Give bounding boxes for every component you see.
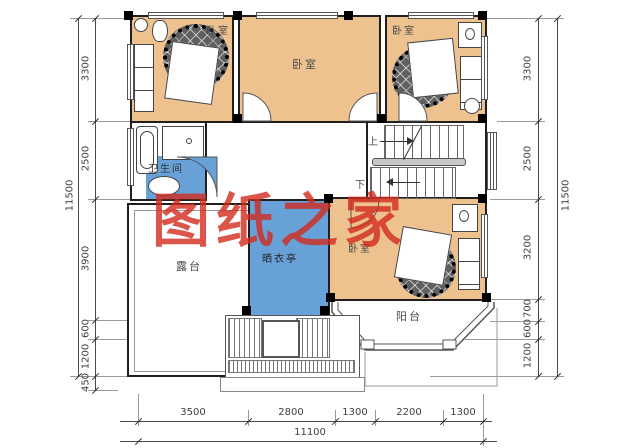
wardrobe-bottom-right — [458, 238, 480, 290]
bedroom-top-left-label: 卧室 — [206, 22, 230, 37]
steps-hatch-right — [296, 318, 330, 358]
dim-left-1: 2500 — [81, 139, 92, 179]
column — [377, 114, 386, 123]
vase-icon — [459, 210, 469, 222]
dim-ext — [248, 410, 249, 426]
vase-icon — [465, 28, 475, 40]
steps-bottom-strip — [228, 360, 355, 373]
dim-left-offset: 450 — [81, 363, 92, 403]
window — [481, 214, 488, 278]
bedroom-bottom-right-label: 卧室 — [348, 240, 372, 255]
dim-bottom-0: 3500 — [168, 407, 218, 418]
column — [478, 11, 487, 20]
dim-right-2: 3200 — [523, 228, 534, 268]
window — [127, 128, 134, 186]
column — [124, 11, 133, 20]
fan-icon — [134, 18, 148, 32]
dim-bottom-3: 2200 — [384, 407, 434, 418]
stair-up-label: 上 — [368, 133, 380, 148]
door-arc-bedroom — [350, 199, 380, 229]
stair-bay-window — [487, 132, 497, 190]
door-arc — [242, 92, 272, 122]
window — [127, 44, 134, 100]
dim-line-left-total — [78, 18, 79, 376]
dim-left-0: 3300 — [81, 49, 92, 89]
stair-arrow-up-line — [380, 141, 408, 142]
door-arc — [348, 92, 378, 122]
window — [256, 12, 338, 19]
balcony-label: 阳台 — [396, 308, 422, 324]
toilet-icon — [152, 20, 168, 42]
stair-arrow-down-line — [392, 182, 420, 183]
stair-flight-down — [370, 167, 456, 199]
stair-down-label: 下 — [355, 176, 367, 191]
bed-blanket — [394, 226, 452, 286]
window — [408, 12, 474, 19]
stair-arrow-down-head — [386, 178, 393, 186]
steps-landing — [262, 320, 300, 358]
steps-hatch-left — [228, 318, 262, 358]
dim-line-bottom-total — [120, 441, 497, 442]
column — [478, 194, 487, 203]
drying-pavilion-label: 晒衣亭 — [262, 250, 298, 265]
dim-ext — [487, 18, 564, 19]
window — [481, 36, 488, 100]
wardrobe-top-left — [134, 44, 154, 112]
bed-blanket — [407, 38, 459, 99]
dim-bottom-1: 2800 — [266, 407, 316, 418]
dim-right-5: 1200 — [523, 336, 534, 376]
column — [242, 306, 251, 315]
column — [344, 11, 353, 20]
dim-right-1: 2500 — [523, 139, 534, 179]
floor-plan: 3300 2500 3900 600 1200 450 11500 3300 2… — [0, 0, 640, 448]
column — [326, 293, 335, 302]
column — [478, 114, 487, 123]
bedroom-top-center-label: 卧室 — [292, 56, 318, 72]
stair-handrail — [372, 158, 466, 166]
stair-flight-up — [384, 125, 464, 159]
dim-line-bottom-chain — [120, 421, 492, 422]
column — [482, 293, 491, 302]
dim-bottom-total: 11100 — [285, 427, 335, 438]
column — [233, 11, 242, 20]
terrace-label: 露台 — [176, 258, 202, 274]
fan-icon — [464, 98, 480, 114]
column — [233, 114, 242, 123]
dim-left-total: 11500 — [65, 176, 76, 216]
shower — [162, 126, 204, 160]
dim-left-2: 3900 — [81, 239, 92, 279]
shower-drain-icon — [186, 138, 192, 144]
window — [148, 12, 224, 19]
dim-line-left-chain — [95, 18, 96, 390]
steps-apron — [220, 377, 365, 392]
column — [320, 306, 329, 315]
dim-right-total: 11500 — [561, 176, 572, 216]
door-arc — [398, 92, 428, 122]
dim-bottom-2: 1300 — [330, 407, 380, 418]
column — [324, 194, 333, 203]
dim-right-0: 3300 — [523, 49, 534, 89]
dim-line-right-total — [557, 18, 558, 376]
bed-blanket — [164, 41, 220, 105]
dim-bottom-4: 1300 — [438, 407, 488, 418]
bedroom-top-right-label: 卧室 — [392, 22, 416, 37]
bathroom-label: 卫生间 — [148, 160, 184, 175]
